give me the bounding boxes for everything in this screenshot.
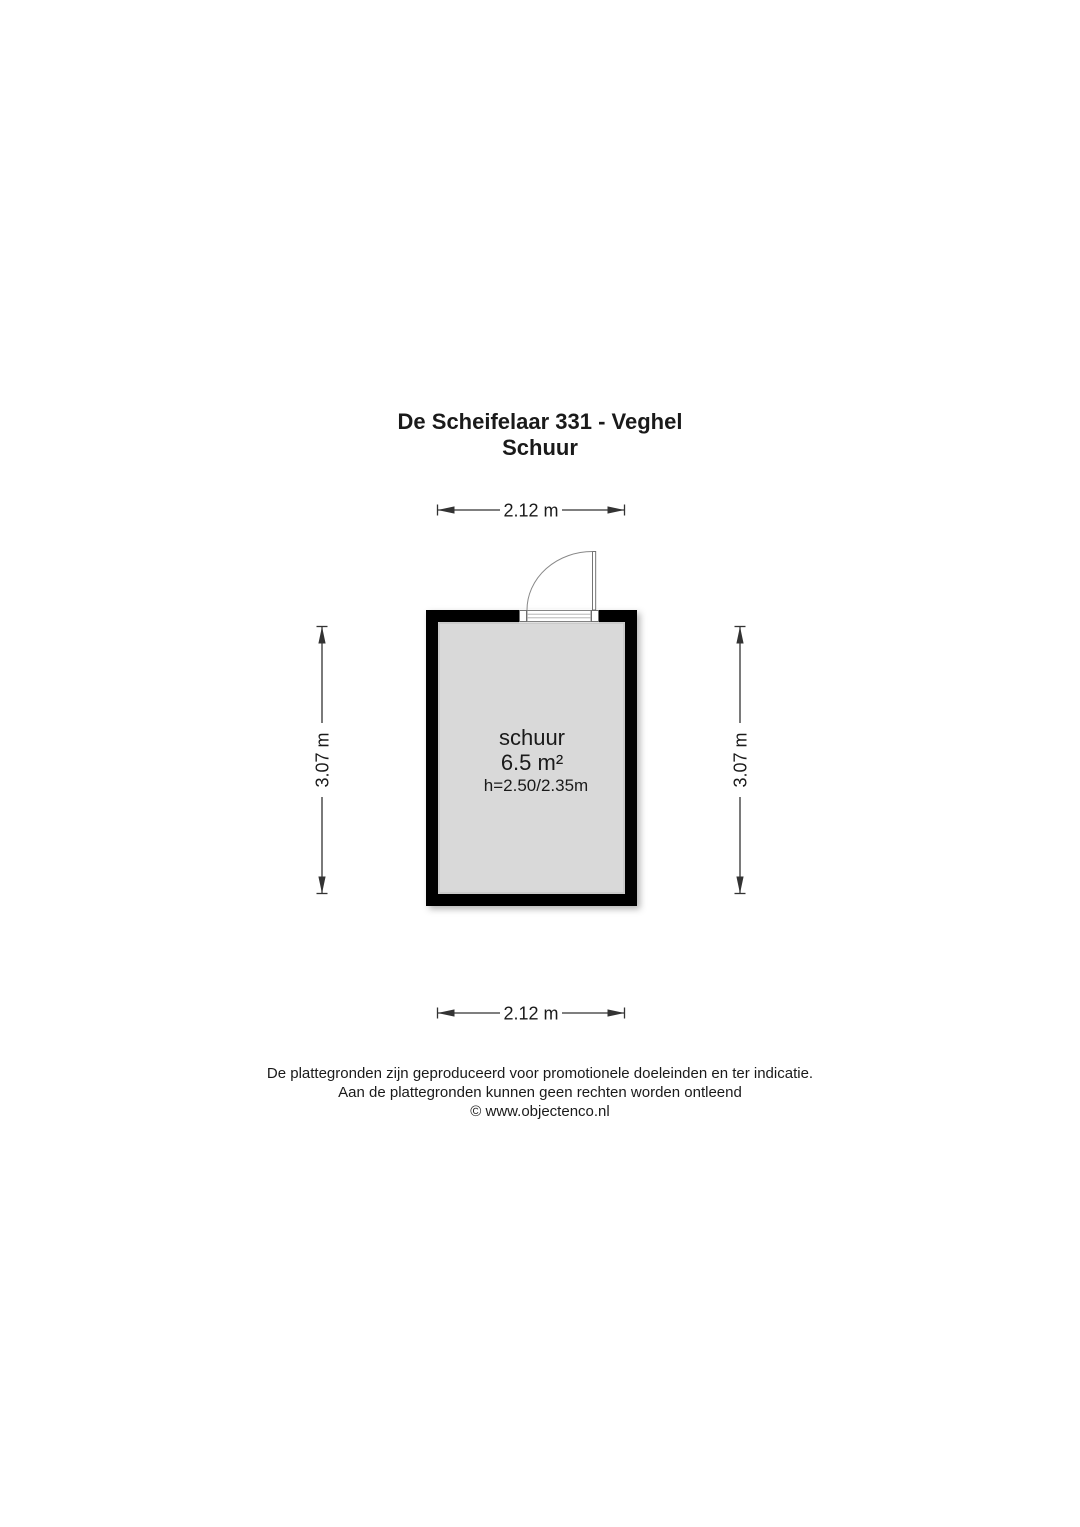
dimension-left-arrow-up (318, 627, 325, 644)
disclaimer-line-1: De plattegronden zijn geproduceerd voor … (0, 1064, 1080, 1083)
dimension-right-label: 3.07 m (731, 732, 751, 787)
dimension-right-arrow-down (736, 877, 743, 894)
dimension-top-label: 2.12 m (503, 501, 558, 521)
door-leaf (593, 552, 596, 611)
room-schuur: schuur 6.5 m² h=2.50/2.35m (426, 552, 637, 907)
door-swing-arc (527, 552, 593, 611)
floorplan-drawing: 2.12 m 3.07 m 3.07 m (0, 0, 1080, 1527)
dimension-right-arrow-up (736, 627, 743, 644)
door-jamb-left (520, 611, 527, 622)
room-area-label: 6.5 m² (501, 750, 563, 775)
dimension-top-arrow-right (608, 506, 625, 513)
room-ceiling-height-label: h=2.50/2.35m (484, 776, 588, 795)
door (519, 552, 599, 623)
dimension-bottom-arrow-left (438, 1009, 455, 1016)
door-sill (527, 611, 591, 622)
door-jamb-right (592, 611, 599, 622)
dimension-top-arrow-left (438, 506, 455, 513)
disclaimer-line-3: © www.objectenco.nl (0, 1102, 1080, 1121)
dimension-bottom-arrow-right (608, 1009, 625, 1016)
dimension-left-label: 3.07 m (313, 732, 333, 787)
floorplan-page: De Scheifelaar 331 - Veghel Schuur 2.12 … (0, 0, 1080, 1527)
room-name-label: schuur (499, 725, 565, 750)
dimension-bottom-label: 2.12 m (503, 1004, 558, 1024)
disclaimer-line-2: Aan de plattegronden kunnen geen rechten… (0, 1083, 1080, 1102)
dimension-left-arrow-down (318, 877, 325, 894)
disclaimer: De plattegronden zijn geproduceerd voor … (0, 1064, 1080, 1121)
